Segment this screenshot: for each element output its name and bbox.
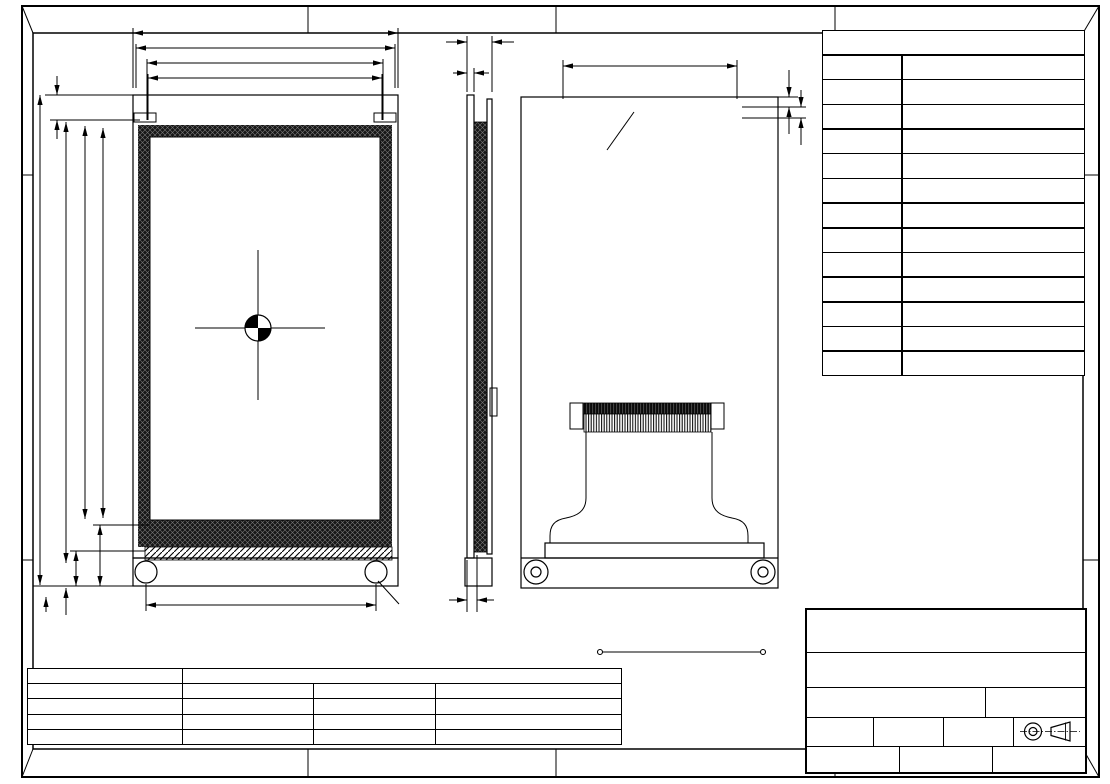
drawing-sheet <box>0 0 1110 784</box>
terminal-pin <box>903 253 1085 276</box>
spec-value <box>436 699 621 713</box>
checked-cell <box>899 747 992 772</box>
bl-circuit-linework <box>598 650 766 655</box>
spec-value <box>183 684 313 698</box>
unit-cell <box>873 718 943 746</box>
back-dimensions <box>563 60 806 150</box>
tolerance-cell <box>943 718 1013 746</box>
terminal-no <box>823 204 901 227</box>
terminal-table <box>822 30 1085 376</box>
terminal-no <box>823 80 901 103</box>
terminal-col-pin <box>903 56 1085 79</box>
terminal-no <box>823 179 901 202</box>
terminal-no <box>823 229 901 252</box>
third-angle-projection-icon <box>1018 719 1082 744</box>
spec-value <box>183 730 313 744</box>
terminal-no <box>823 327 901 350</box>
version-cell <box>985 688 1085 717</box>
date-cell <box>992 747 1085 772</box>
side-view <box>465 95 497 586</box>
terminal-pin <box>903 278 1085 301</box>
terminal-pin <box>903 105 1085 128</box>
terminal-col-no <box>823 56 901 79</box>
spec-label <box>314 684 435 698</box>
spec-label <box>28 684 182 698</box>
spec-table <box>27 668 622 745</box>
edc-no-cell <box>807 688 985 717</box>
projection-symbol-cell <box>1013 718 1085 746</box>
terminal-no <box>823 130 901 153</box>
terminal-no <box>823 278 901 301</box>
terminal-no <box>823 303 901 326</box>
terminal-no <box>823 253 901 276</box>
spec-value <box>436 684 621 698</box>
terminal-pin <box>903 80 1085 103</box>
spec-value <box>183 669 621 683</box>
company-name <box>807 610 1085 652</box>
spec-label <box>314 699 435 713</box>
spec-value <box>183 699 313 713</box>
terminal-no <box>823 105 901 128</box>
spec-label <box>314 715 435 729</box>
terminal-no <box>823 352 901 375</box>
terminal-no <box>823 154 901 177</box>
terminal-pin <box>903 154 1085 177</box>
terminal-pin <box>903 130 1085 153</box>
terminal-table-title <box>823 31 1084 54</box>
scale-cell <box>807 718 873 746</box>
back-view <box>521 97 778 588</box>
spec-label <box>28 669 182 683</box>
terminal-pin <box>903 229 1085 252</box>
spec-label <box>28 730 182 744</box>
spec-label <box>28 715 182 729</box>
terminal-pin <box>903 352 1085 375</box>
terminal-pin <box>903 204 1085 227</box>
terminal-pin <box>903 303 1085 326</box>
front-view <box>133 95 398 586</box>
spec-value <box>436 715 621 729</box>
terminal-pin <box>903 179 1085 202</box>
spec-value <box>183 715 313 729</box>
spec-value <box>436 730 621 744</box>
terminal-pin <box>903 327 1085 350</box>
dwg-title-cell <box>807 653 1085 687</box>
drawn-cell <box>807 747 899 772</box>
title-block <box>805 608 1087 774</box>
spec-label <box>28 699 182 713</box>
spec-label <box>314 730 435 744</box>
